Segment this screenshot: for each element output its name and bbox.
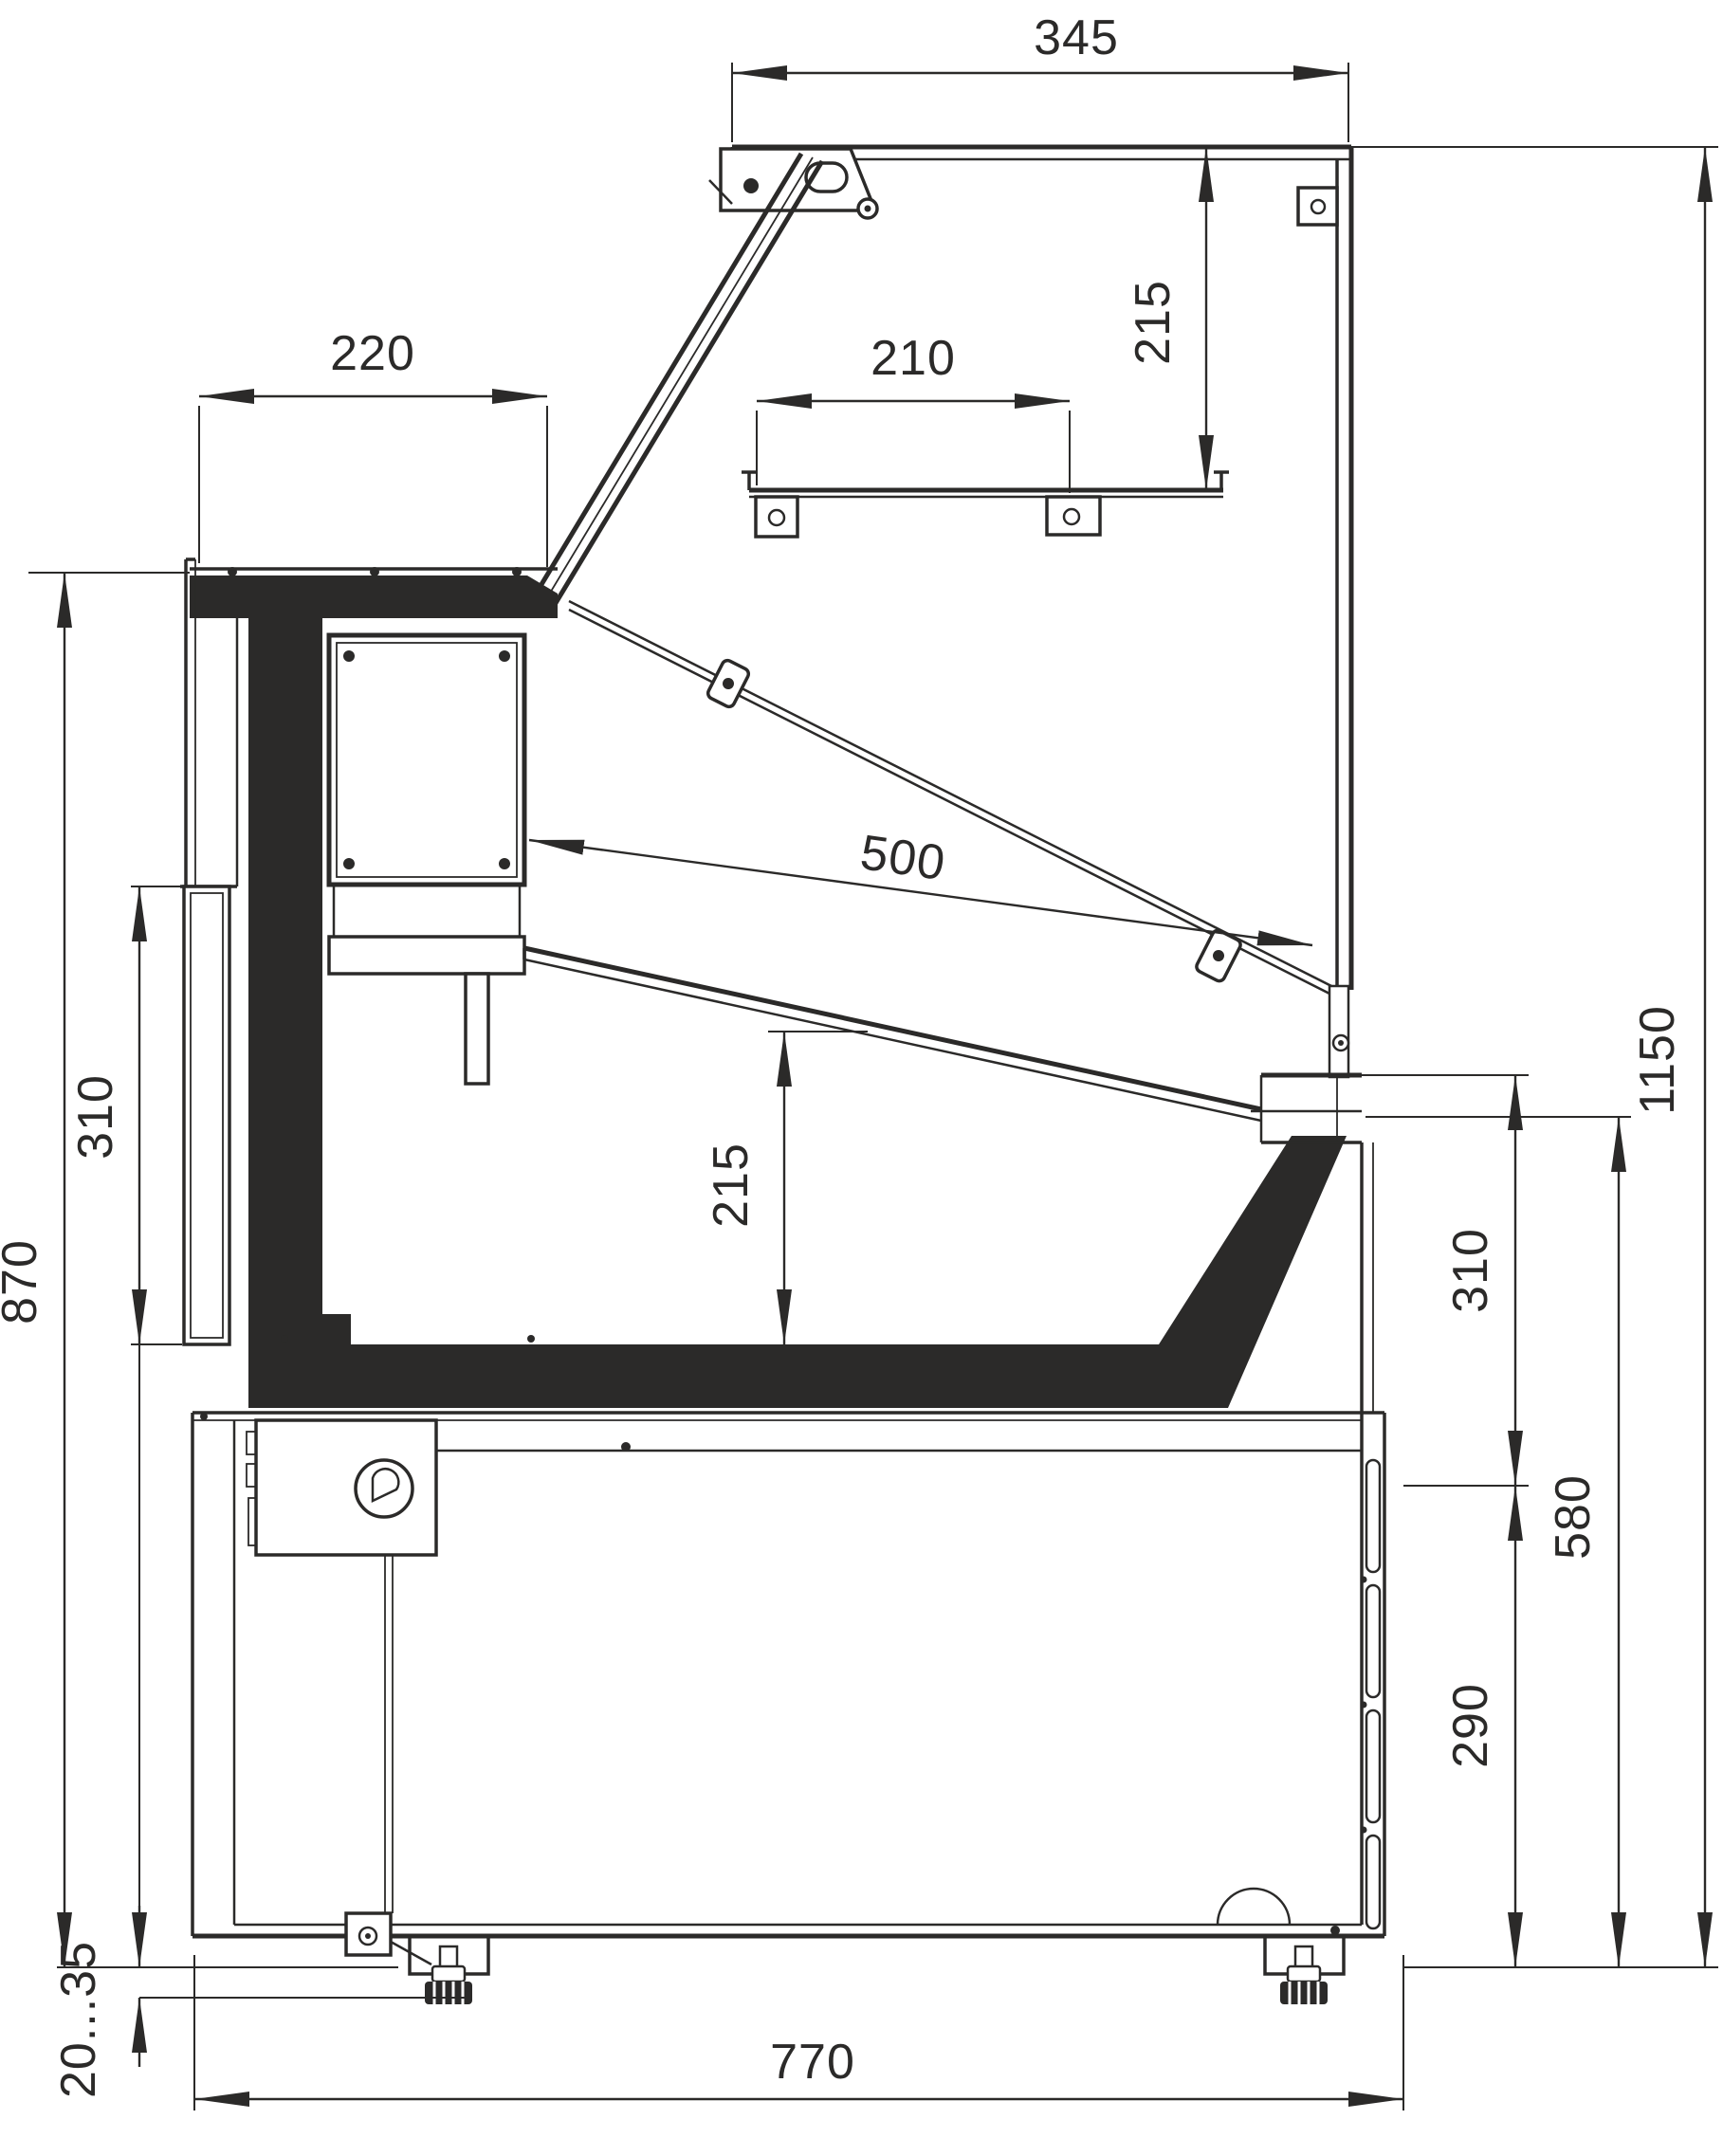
dim-770-label: 770 bbox=[770, 2035, 855, 2090]
hinge-hole-icon bbox=[743, 178, 759, 193]
canopy-top bbox=[732, 147, 1718, 159]
dim-580-label: 580 bbox=[1546, 1474, 1601, 1560]
dimension-345: 345 bbox=[732, 10, 1348, 142]
adjustable-foot-right bbox=[1265, 1936, 1344, 2004]
thermostat-box bbox=[247, 1420, 436, 1964]
dimension-310-right: 310 bbox=[1362, 1075, 1529, 1486]
counter-insulation bbox=[190, 576, 558, 618]
dim-500-label: 500 bbox=[857, 825, 949, 891]
dimension-770: 770 bbox=[194, 1955, 1403, 2110]
vent-slot-2 bbox=[1366, 1585, 1380, 1697]
vent-slot-4 bbox=[1366, 1836, 1380, 1928]
dim-feet-label: 20...35 bbox=[51, 1941, 106, 2098]
canopy-shelf bbox=[742, 472, 1229, 537]
dim-215-top-label: 215 bbox=[1126, 280, 1181, 365]
drawing-page: 345 215 220 210 500 215 310 870 bbox=[0, 0, 1723, 2156]
front-lower-wall bbox=[1361, 1142, 1385, 1936]
open-front-glass bbox=[529, 154, 822, 612]
display-deck bbox=[524, 948, 1261, 1121]
dimension-210: 210 bbox=[757, 331, 1070, 493]
dimension-215-top: 215 bbox=[1126, 147, 1206, 490]
dim-1150-label: 1150 bbox=[1630, 1005, 1685, 1115]
left-decor-panel bbox=[184, 886, 229, 1344]
dim-345-label: 345 bbox=[1034, 10, 1119, 65]
dim-870-label: 870 bbox=[0, 1239, 47, 1325]
dimension-220: 220 bbox=[199, 326, 547, 567]
dim-215-mid-label: 215 bbox=[704, 1142, 759, 1228]
vent-slot-3 bbox=[1366, 1710, 1380, 1822]
section-drawing: 345 215 220 210 500 215 310 870 bbox=[0, 0, 1723, 2156]
glass-channel bbox=[1329, 986, 1348, 1077]
dimension-290: 290 bbox=[1443, 1486, 1515, 1967]
machinery-compartment bbox=[329, 635, 524, 1084]
dimension-215-mid: 215 bbox=[704, 1032, 868, 1344]
shelf-bracket-left bbox=[756, 497, 797, 537]
dim-210-label: 210 bbox=[871, 331, 956, 386]
dim-310-left-label: 310 bbox=[68, 1074, 123, 1160]
drain-pipe bbox=[466, 974, 488, 1084]
drain-sump bbox=[1218, 1889, 1290, 1925]
shelf-bracket-right bbox=[1047, 497, 1100, 535]
dimension-500: 500 bbox=[529, 825, 1312, 945]
dimension-580: 580 bbox=[1366, 1117, 1631, 1967]
dim-290-label: 290 bbox=[1443, 1683, 1498, 1768]
dimension-310-left: 310 bbox=[68, 886, 182, 1344]
vent-slot-1 bbox=[1366, 1460, 1380, 1572]
dim-220-label: 220 bbox=[330, 326, 415, 381]
adjustable-foot-left bbox=[410, 1936, 488, 2004]
dim-310-right-label: 310 bbox=[1443, 1228, 1498, 1313]
front-nose-sill bbox=[1251, 986, 1362, 1142]
glass-stay-rod bbox=[569, 601, 1339, 998]
rear-glass-wall bbox=[1298, 147, 1351, 990]
